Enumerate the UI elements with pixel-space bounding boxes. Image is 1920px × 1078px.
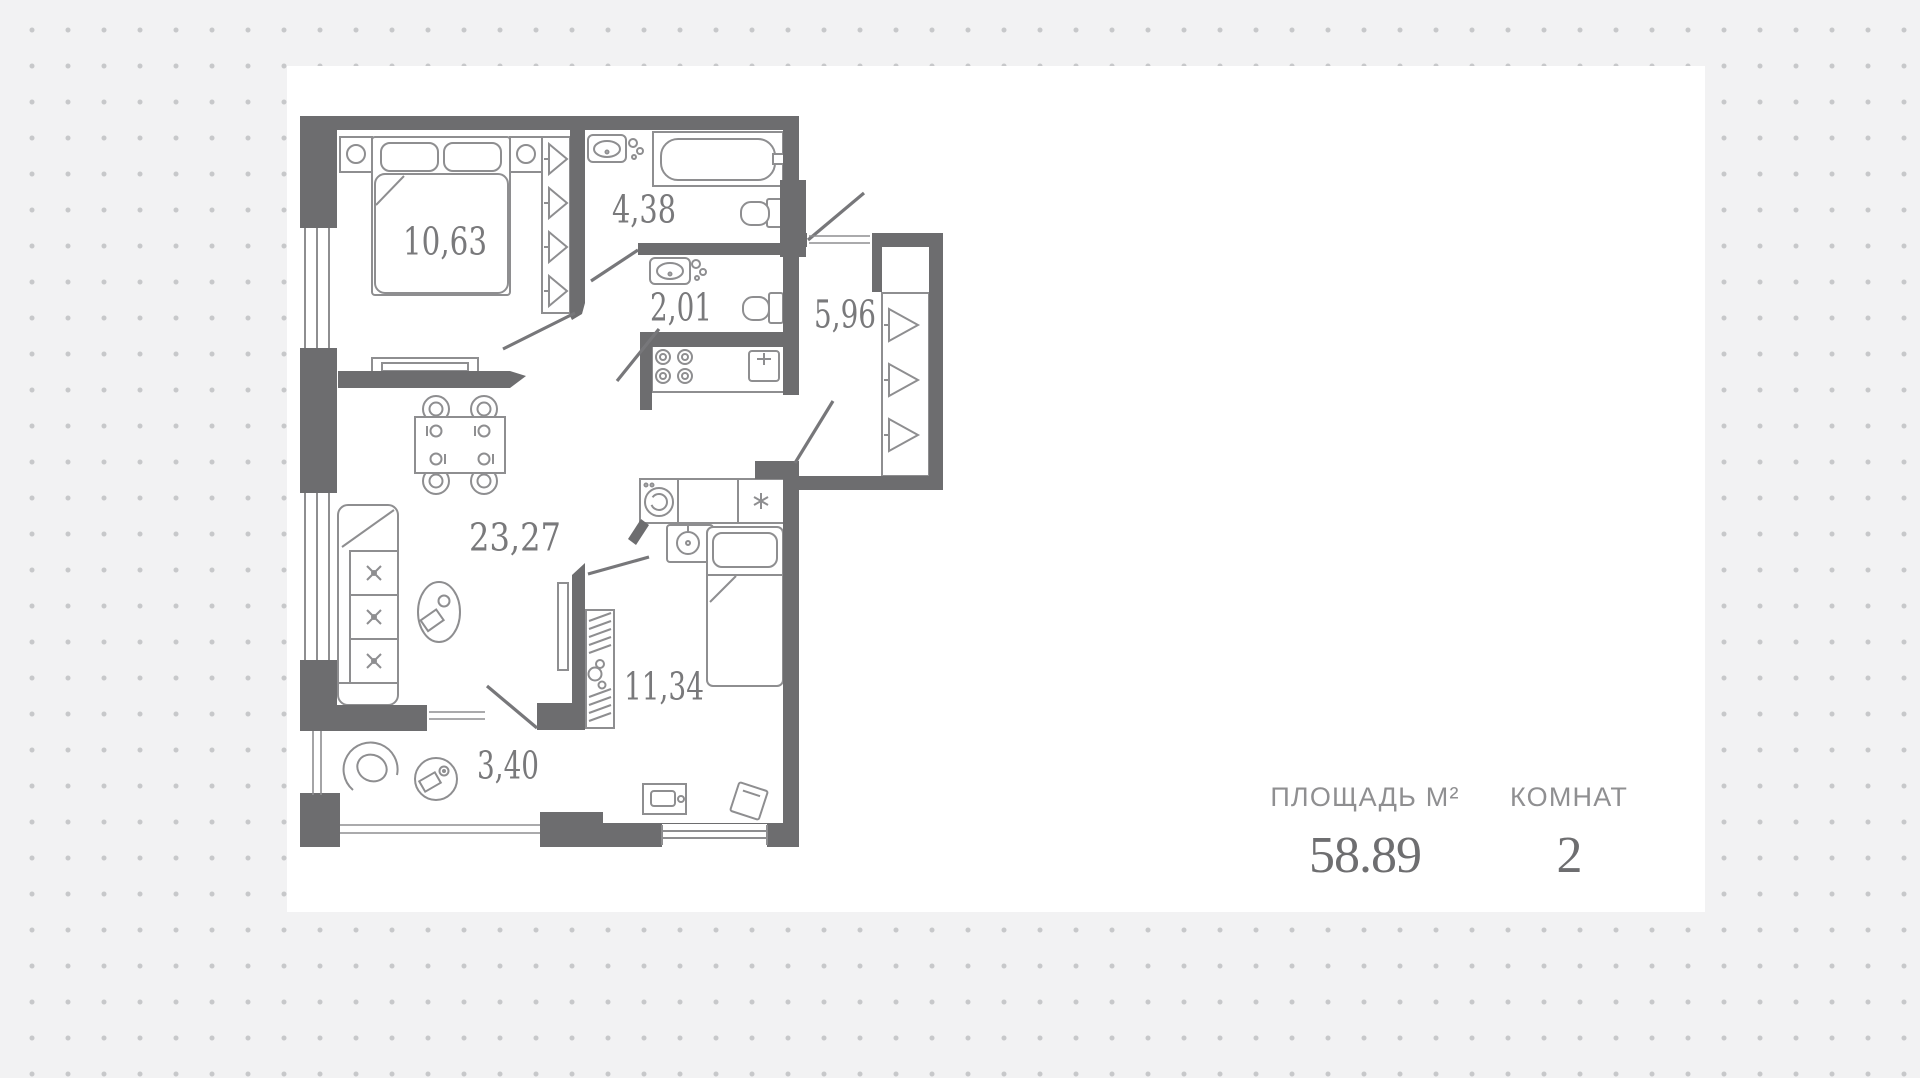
stat-area: ПЛОЩАДЬ М² 58.89 (1262, 782, 1468, 885)
nightstand (340, 137, 372, 172)
stove-counter (652, 345, 790, 392)
room-area-label: 23,27 (469, 516, 561, 560)
shelf (558, 583, 568, 670)
dining-table (415, 417, 505, 473)
room-area-label: 11,34 (624, 665, 704, 709)
room-area-label: 5,96 (814, 293, 876, 337)
stat-rooms-label: КОМНАТ (1510, 782, 1628, 813)
stat-area-value: 58.89 (1262, 826, 1468, 885)
room-area-label: 4,38 (612, 188, 676, 232)
desk (586, 610, 614, 728)
bathroom-sink (588, 135, 643, 162)
stat-rooms-value: 2 (1510, 826, 1628, 885)
window (662, 824, 767, 847)
single-bed (707, 527, 783, 686)
hallway-wardrobe (882, 293, 929, 476)
pouf (730, 782, 768, 820)
wardrobe (542, 137, 570, 313)
room-area-label: 2,01 (650, 286, 712, 330)
sofa (338, 505, 398, 705)
window (305, 493, 329, 660)
stat-rooms: КОМНАТ 2 (1510, 782, 1628, 885)
toilet (743, 293, 783, 323)
stat-area-label: ПЛОЩАДЬ М² (1262, 782, 1468, 813)
coffee-table (418, 582, 460, 642)
floor-plan: 23,27 10,63 11,34 5,96 4,38 2,01 3,40 (297, 113, 947, 853)
window (305, 228, 329, 348)
nightstand (643, 784, 686, 814)
apartment-stats: ПЛОЩАДЬ М² 58.89 КОМНАТ 2 (1262, 782, 1628, 885)
wc-sink (650, 258, 706, 284)
washer-fridge-counter (640, 479, 785, 523)
bathtub (653, 132, 785, 186)
double-bed (372, 137, 510, 295)
room-area-label: 10,63 (403, 220, 487, 264)
armchair (344, 742, 398, 790)
toilet (741, 199, 783, 227)
room-area-label: 3,40 (477, 744, 539, 788)
nightstand (510, 137, 542, 172)
balcony-table (415, 758, 457, 800)
